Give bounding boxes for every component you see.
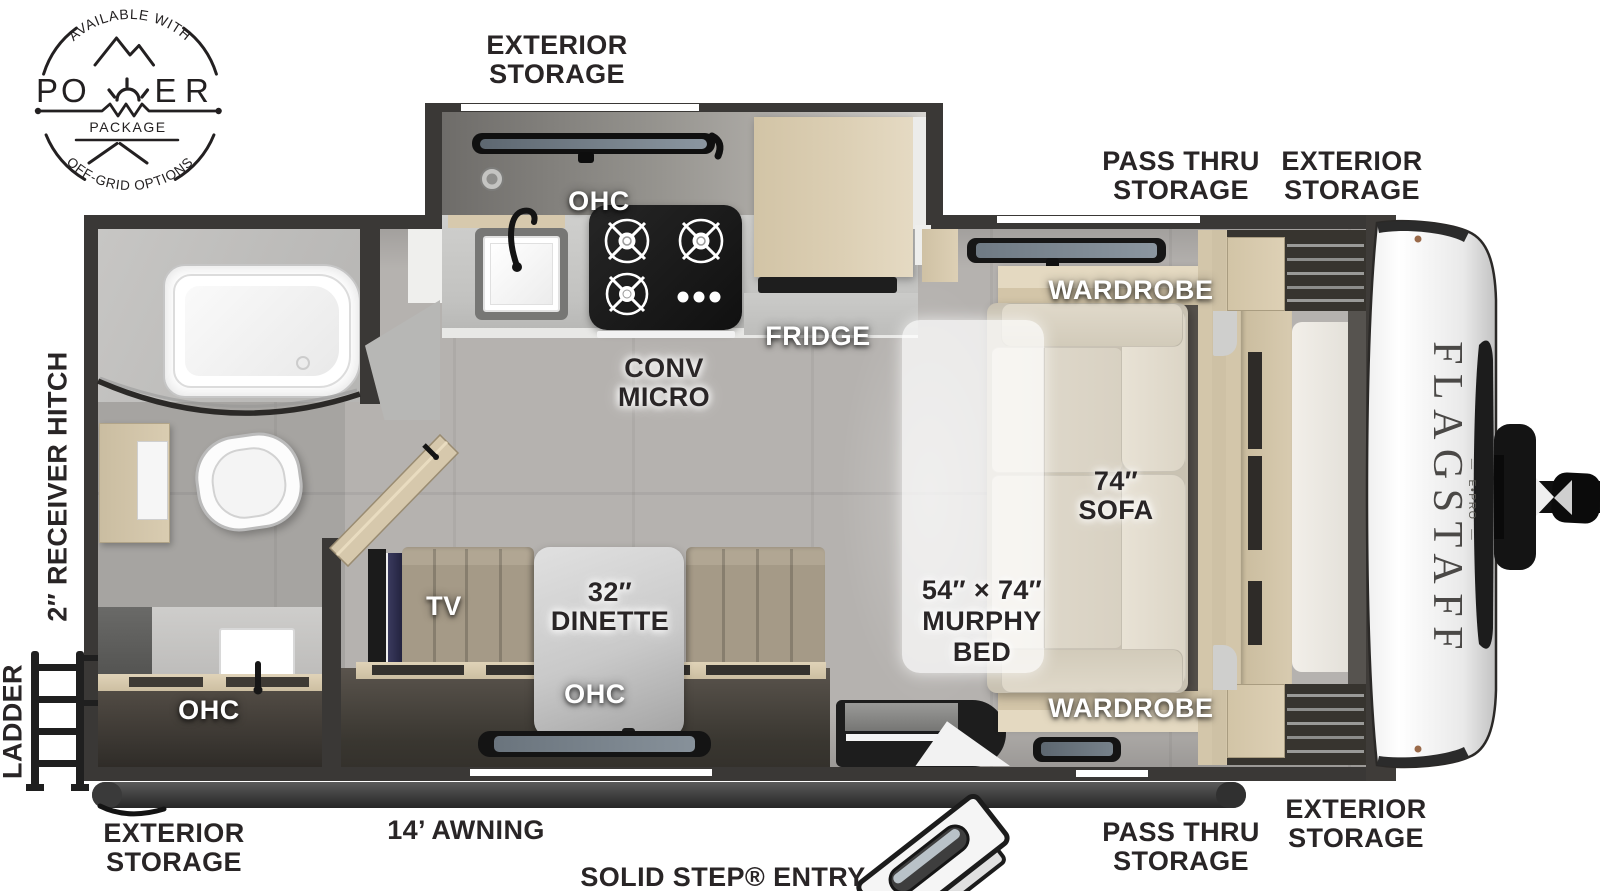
svg-text:O: O [61, 72, 87, 109]
svg-text:R: R [185, 72, 209, 109]
svg-text:PACKAGE: PACKAGE [89, 119, 166, 135]
svg-text:— E•PRO —: — E•PRO — [1466, 459, 1478, 542]
svg-text:OFF-GRID OPTIONS: OFF-GRID OPTIONS [64, 154, 196, 193]
svg-text:P: P [36, 72, 58, 109]
svg-text:AVAILABLE WITH: AVAILABLE WITH [65, 6, 195, 44]
svg-text:FLAGSTAFF: FLAGSTAFF [1424, 341, 1470, 659]
svg-text:E: E [155, 72, 177, 109]
